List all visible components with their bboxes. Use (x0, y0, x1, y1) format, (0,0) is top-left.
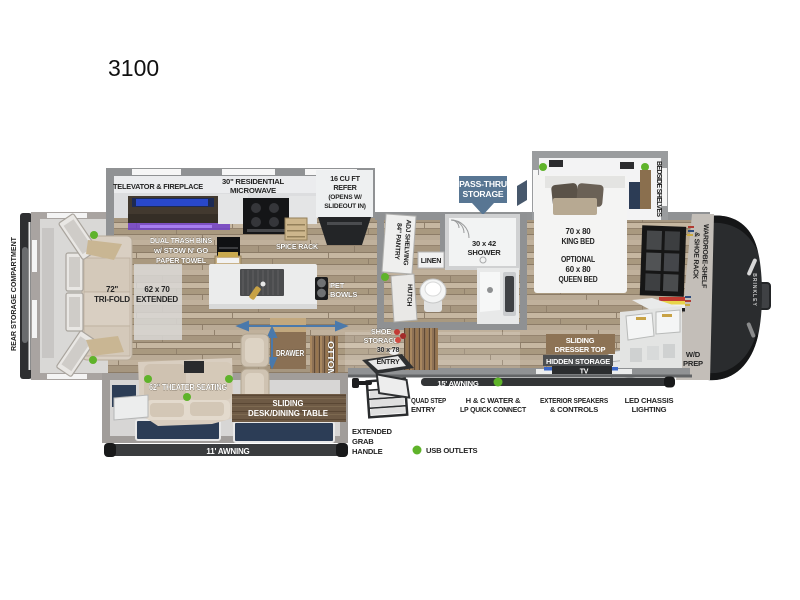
svg-text:SLIDING: SLIDING (273, 399, 304, 408)
svg-text:MICROWAVE: MICROWAVE (230, 186, 276, 195)
svg-text:USB OUTLETS: USB OUTLETS (426, 446, 478, 455)
svg-text:BEDSIDE SHELVES: BEDSIDE SHELVES (655, 161, 662, 217)
svg-text:LED CHASSIS: LED CHASSIS (625, 396, 674, 405)
svg-text:70 x 80: 70 x 80 (566, 227, 592, 236)
svg-text:H & C WATER &: H & C WATER & (466, 396, 521, 405)
svg-text:30 x 42: 30 x 42 (472, 239, 496, 248)
svg-text:KING BED: KING BED (562, 237, 595, 246)
svg-text:SPICE RACK: SPICE RACK (276, 242, 319, 251)
svg-text:SLIDEOUT IN): SLIDEOUT IN) (324, 203, 366, 210)
svg-text:30 x 78: 30 x 78 (377, 345, 400, 354)
svg-text:w/ STOW N' GO: w/ STOW N' GO (153, 246, 208, 255)
svg-text:& CONTROLS: & CONTROLS (550, 405, 598, 414)
svg-text:30" RESIDENTIAL: 30" RESIDENTIAL (222, 177, 285, 186)
svg-text:EXTERIOR SPEAKERS: EXTERIOR SPEAKERS (540, 396, 608, 405)
svg-text:SHOWER: SHOWER (468, 248, 502, 257)
svg-text:GRAB: GRAB (352, 437, 374, 446)
svg-text:DRAWER: DRAWER (276, 349, 304, 358)
svg-text:(OPENS W/: (OPENS W/ (328, 194, 362, 201)
svg-text:BRINKLEY: BRINKLEY (751, 273, 757, 307)
svg-text:TV: TV (580, 369, 589, 376)
svg-text:EXTENDED: EXTENDED (352, 427, 392, 436)
svg-text:QUAD STEP: QUAD STEP (411, 396, 446, 405)
svg-text:HIDDEN STORAGE: HIDDEN STORAGE (546, 357, 610, 366)
svg-text:SLIDING: SLIDING (566, 336, 595, 345)
svg-text:SHOE: SHOE (371, 327, 391, 336)
svg-text:ENTRY: ENTRY (376, 357, 399, 366)
svg-text:LIGHTING: LIGHTING (632, 405, 667, 414)
svg-text:3100: 3100 (108, 55, 159, 81)
svg-text:PET: PET (330, 281, 345, 290)
svg-text:REAR STORAGE COMPARTMENT: REAR STORAGE COMPARTMENT (9, 237, 18, 351)
svg-text:11' AWNING: 11' AWNING (206, 447, 249, 456)
svg-text:TELEVATOR & FIREPLACE: TELEVATOR & FIREPLACE (113, 182, 203, 191)
svg-text:LP QUICK CONNECT: LP QUICK CONNECT (460, 405, 527, 414)
svg-text:W/D: W/D (686, 350, 701, 359)
svg-text:16 CU FT: 16 CU FT (330, 174, 360, 183)
svg-text:REFER: REFER (333, 183, 357, 192)
svg-text:62 x 70: 62 x 70 (144, 285, 170, 294)
svg-text:LINEN: LINEN (421, 256, 442, 265)
svg-text:STORAGE: STORAGE (363, 336, 398, 345)
svg-text:DUAL TRASH BINS: DUAL TRASH BINS (150, 236, 212, 245)
svg-text:PAPER TOWEL: PAPER TOWEL (156, 256, 207, 265)
svg-text:OPTIONAL: OPTIONAL (561, 255, 595, 264)
svg-text:QUEEN BED: QUEEN BED (559, 275, 598, 284)
svg-text:HANDLE: HANDLE (352, 447, 383, 456)
svg-text:HUTCH: HUTCH (405, 284, 413, 307)
svg-text:TRI-FOLD: TRI-FOLD (94, 295, 130, 304)
svg-text:15' AWNING: 15' AWNING (437, 379, 479, 388)
svg-text:BOWLS: BOWLS (330, 290, 357, 299)
svg-text:60 x 80: 60 x 80 (566, 265, 592, 274)
svg-text:DRESSER TOP: DRESSER TOP (555, 345, 606, 354)
svg-text:PREP: PREP (683, 359, 703, 368)
svg-text:STORAGE: STORAGE (463, 189, 504, 199)
svg-text:72": 72" (106, 285, 118, 294)
svg-text:ENTRY: ENTRY (411, 405, 436, 414)
svg-text:PASS-THRU: PASS-THRU (459, 179, 507, 189)
svg-text:62" THEATER SEATING: 62" THEATER SEATING (149, 383, 227, 392)
svg-text:EXTENDED: EXTENDED (136, 295, 178, 304)
svg-text:DESK/DINING TABLE: DESK/DINING TABLE (248, 409, 328, 418)
